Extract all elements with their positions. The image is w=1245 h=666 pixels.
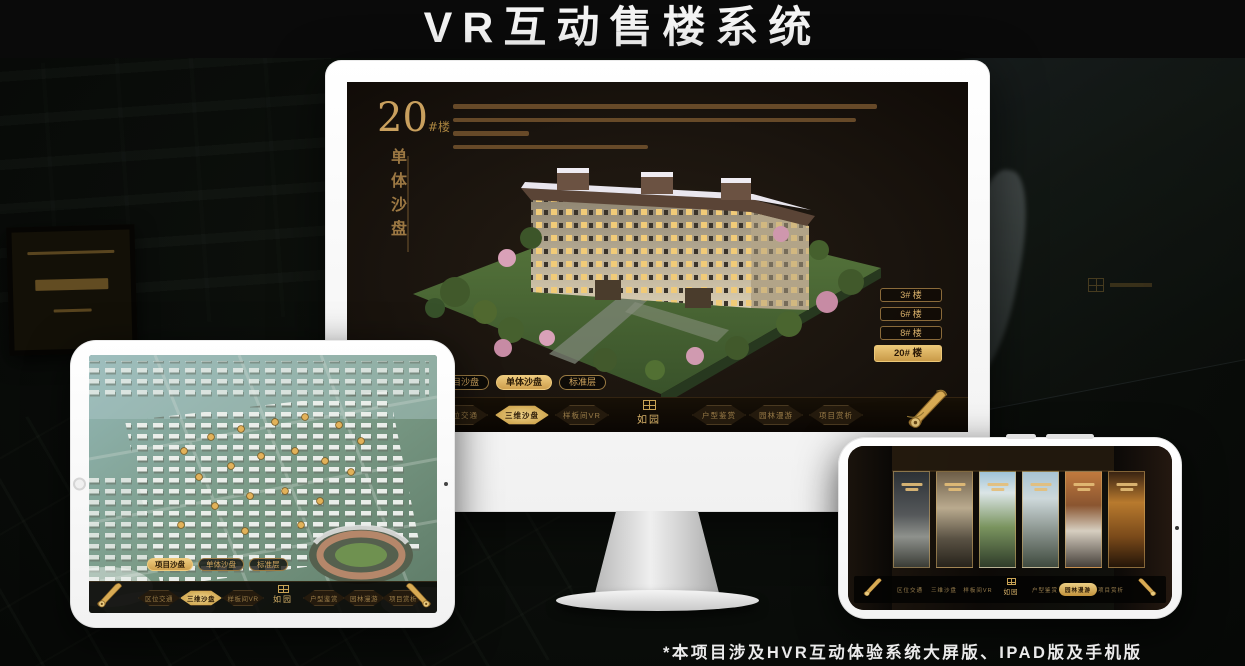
nav-emblem-icon: 园林漫游 xyxy=(749,405,803,425)
nav-item-label: 项目赏析 xyxy=(1098,586,1124,594)
nav-item-label: 户型鉴赏 xyxy=(702,410,736,421)
camera-icon xyxy=(1175,526,1179,530)
text-line xyxy=(453,118,856,123)
brand-emblem-icon xyxy=(278,585,289,593)
card-title-bar xyxy=(1030,483,1051,486)
interior-ceiling-decor xyxy=(884,446,1136,472)
floor-button-3[interactable]: 3# 楼 xyxy=(880,288,942,302)
monitor-base xyxy=(556,590,759,611)
card-title-bar xyxy=(1034,488,1047,491)
ipad-device: 项目沙盘 单体沙盘 标准层 区位交通 三维沙盘 样板间VR xyxy=(70,340,455,628)
nav-item-garden-tour[interactable]: 园林漫游 xyxy=(748,405,804,425)
subtab-project-sandbox[interactable]: 项目沙盘 xyxy=(147,558,193,571)
nav-item-label: 园林漫游 xyxy=(1065,586,1091,594)
nav-emblem-icon: 项目赏析 xyxy=(1092,583,1130,596)
nav-emblem-icon: 项目赏析 xyxy=(809,405,863,425)
nav-item-model-room-vr[interactable]: 样板间VR xyxy=(221,590,265,606)
nav-emblem-icon: 样板间VR xyxy=(959,583,997,596)
brand-logo[interactable]: 如园 xyxy=(263,585,303,605)
subtab-single-sandbox[interactable]: 单体沙盘 xyxy=(496,375,552,390)
text-line xyxy=(453,104,877,109)
nav-item-label: 园林漫游 xyxy=(759,410,793,421)
ipad-screen: 项目沙盘 单体沙盘 标准层 区位交通 三维沙盘 样板间VR xyxy=(89,355,437,613)
ipad-nav-bar: 区位交通 三维沙盘 样板间VR 如园 户型鉴赏 园林漫游 xyxy=(89,581,437,613)
nav-item-label: 三维沙盘 xyxy=(187,593,215,603)
card-title-bar xyxy=(905,488,918,491)
card-title-bar xyxy=(944,483,965,486)
nav-item-3d-sandbox[interactable]: 三维沙盘 xyxy=(179,590,223,606)
nav-item-label: 户型鉴赏 xyxy=(310,593,338,603)
card-title-bar xyxy=(1116,483,1137,486)
scene-card-gallery xyxy=(893,471,1145,568)
nav-item-label: 样板间VR xyxy=(963,586,992,594)
title-bar: VR互动售楼系统 xyxy=(0,0,1245,58)
grid-emblem-icon xyxy=(1088,278,1104,292)
nav-item-label: 三维沙盘 xyxy=(505,410,539,421)
aerial-masterplan-viewport[interactable] xyxy=(89,355,437,613)
phone-nav-bar: 区位交通 三维沙盘 样板间VR 如园 户型鉴赏 园林漫游 xyxy=(854,576,1166,603)
nav-emblem-icon: 三维沙盘 xyxy=(495,405,549,425)
nav-item-floorplan[interactable]: 户型鉴赏 xyxy=(691,405,747,425)
nav-item-project-gallery[interactable]: 项目赏析 xyxy=(1091,583,1131,596)
monitor-stand xyxy=(595,511,719,593)
scroll-menu-icon[interactable] xyxy=(95,577,125,613)
nav-item-label: 样板间VR xyxy=(563,410,601,421)
building-number-heading: 20#楼 xyxy=(377,98,450,138)
nav-item-floorplan[interactable]: 户型鉴赏 xyxy=(302,590,346,606)
brand-logo-text: 如园 xyxy=(994,586,1028,596)
card-title-bar xyxy=(1120,488,1133,491)
brand-emblem-icon xyxy=(643,400,656,410)
floor-button-6[interactable]: 6# 楼 xyxy=(880,307,942,321)
card-title-bar xyxy=(948,488,961,491)
floor-button-8[interactable]: 8# 楼 xyxy=(880,326,942,340)
building-number-value: 20 xyxy=(377,95,428,141)
footnote-caption: *本项目涉及HVR互动体验系统大屏版、IPAD版及手机版 xyxy=(663,639,1142,663)
nav-item-label: 样板间VR xyxy=(227,593,258,603)
card-title-bar xyxy=(991,488,1004,491)
nav-item-model-room-vr[interactable]: 样板间VR xyxy=(958,583,998,596)
scroll-menu-icon[interactable] xyxy=(905,386,951,432)
nav-item-label: 园林漫游 xyxy=(350,593,378,603)
plaque-text-line xyxy=(54,308,92,312)
camera-icon xyxy=(444,482,448,486)
brand-logo[interactable]: 如园 xyxy=(627,400,671,426)
nav-emblem-icon: 三维沙盘 xyxy=(180,590,222,606)
card-title-bar xyxy=(1073,483,1094,486)
nav-item-label: 项目赏析 xyxy=(819,410,853,421)
building-number: 20#楼 xyxy=(377,98,450,138)
floor-button-20[interactable]: 20# 楼 xyxy=(874,345,942,362)
nav-item-label: 区位交通 xyxy=(145,593,173,603)
nav-emblem-icon: 园林漫游 xyxy=(343,590,385,606)
page-title: VR互动售楼系统 xyxy=(0,0,1245,56)
nav-emblem-icon: 户型鉴赏 xyxy=(692,405,746,425)
scene-card[interactable] xyxy=(936,471,973,568)
floor-button-group: 3# 楼 6# 楼 8# 楼 20# 楼 xyxy=(874,288,942,362)
phone-volume-button[interactable] xyxy=(1006,434,1036,439)
scene-card[interactable] xyxy=(979,471,1016,568)
ipad-home-button[interactable] xyxy=(73,478,86,491)
brand-emblem-icon xyxy=(1007,578,1016,585)
nav-emblem-icon: 区位交通 xyxy=(138,590,180,606)
brand-logo-text: 如园 xyxy=(263,594,303,605)
plaque-text-line xyxy=(35,278,108,291)
sandbox-subtab-group: 项目沙盘 单体沙盘 标准层 xyxy=(433,375,606,390)
card-title-bar xyxy=(1077,488,1090,491)
brand-logo[interactable]: 如园 xyxy=(994,578,1028,596)
scene-card[interactable] xyxy=(1108,471,1145,568)
subtab-standard-floor[interactable]: 标准层 xyxy=(559,375,606,390)
scroll-menu-icon[interactable] xyxy=(862,573,884,601)
subtab-standard-floor[interactable]: 标准层 xyxy=(249,558,288,571)
nav-emblem-icon: 样板间VR xyxy=(555,405,609,425)
nav-item-label: 区位交通 xyxy=(897,586,923,594)
background-logo-mark xyxy=(1088,278,1104,292)
nav-item-location[interactable]: 区位交通 xyxy=(137,590,181,606)
card-title-bar xyxy=(901,483,922,486)
brand-logo-text: 如园 xyxy=(627,411,671,426)
plaque-text-line xyxy=(27,250,114,255)
scroll-menu-icon[interactable] xyxy=(403,577,433,613)
background-award-plaque xyxy=(6,224,137,355)
ipad-subtab-group: 项目沙盘 单体沙盘 标准层 xyxy=(147,558,288,571)
nav-item-project-gallery[interactable]: 项目赏析 xyxy=(808,405,864,425)
promo-canvas: VR互动售楼系统 20#楼 单体沙盘 xyxy=(0,0,1245,666)
logo-text-bar xyxy=(1110,283,1152,287)
building-3d-model-viewport[interactable] xyxy=(399,142,895,398)
nav-item-garden-tour[interactable]: 园林漫游 xyxy=(342,590,386,606)
nav-item-label: 户型鉴赏 xyxy=(1032,586,1058,594)
building-unit: #楼 xyxy=(428,120,450,134)
subtab-single-sandbox[interactable]: 单体沙盘 xyxy=(198,558,244,571)
nav-emblem-icon: 户型鉴赏 xyxy=(303,590,345,606)
nav-emblem-icon: 样板间VR xyxy=(222,590,264,606)
scene-card[interactable] xyxy=(893,471,930,568)
phone-device: 区位交通 三维沙盘 样板间VR 如园 户型鉴赏 园林漫游 xyxy=(838,437,1182,619)
card-title-bar xyxy=(987,483,1008,486)
nav-item-model-room-vr[interactable]: 样板间VR xyxy=(554,405,610,425)
nav-item-label: 三维沙盘 xyxy=(931,586,957,594)
phone-power-button[interactable] xyxy=(1046,434,1094,439)
phone-screen: 区位交通 三维沙盘 样板间VR 如园 户型鉴赏 园林漫游 xyxy=(848,446,1172,610)
stadium xyxy=(309,526,413,584)
scroll-menu-icon[interactable] xyxy=(1136,573,1158,601)
text-line xyxy=(453,131,529,136)
nav-item-3d-sandbox[interactable]: 三维沙盘 xyxy=(494,405,550,425)
scene-card[interactable] xyxy=(1065,471,1102,568)
scene-card[interactable] xyxy=(1022,471,1059,568)
